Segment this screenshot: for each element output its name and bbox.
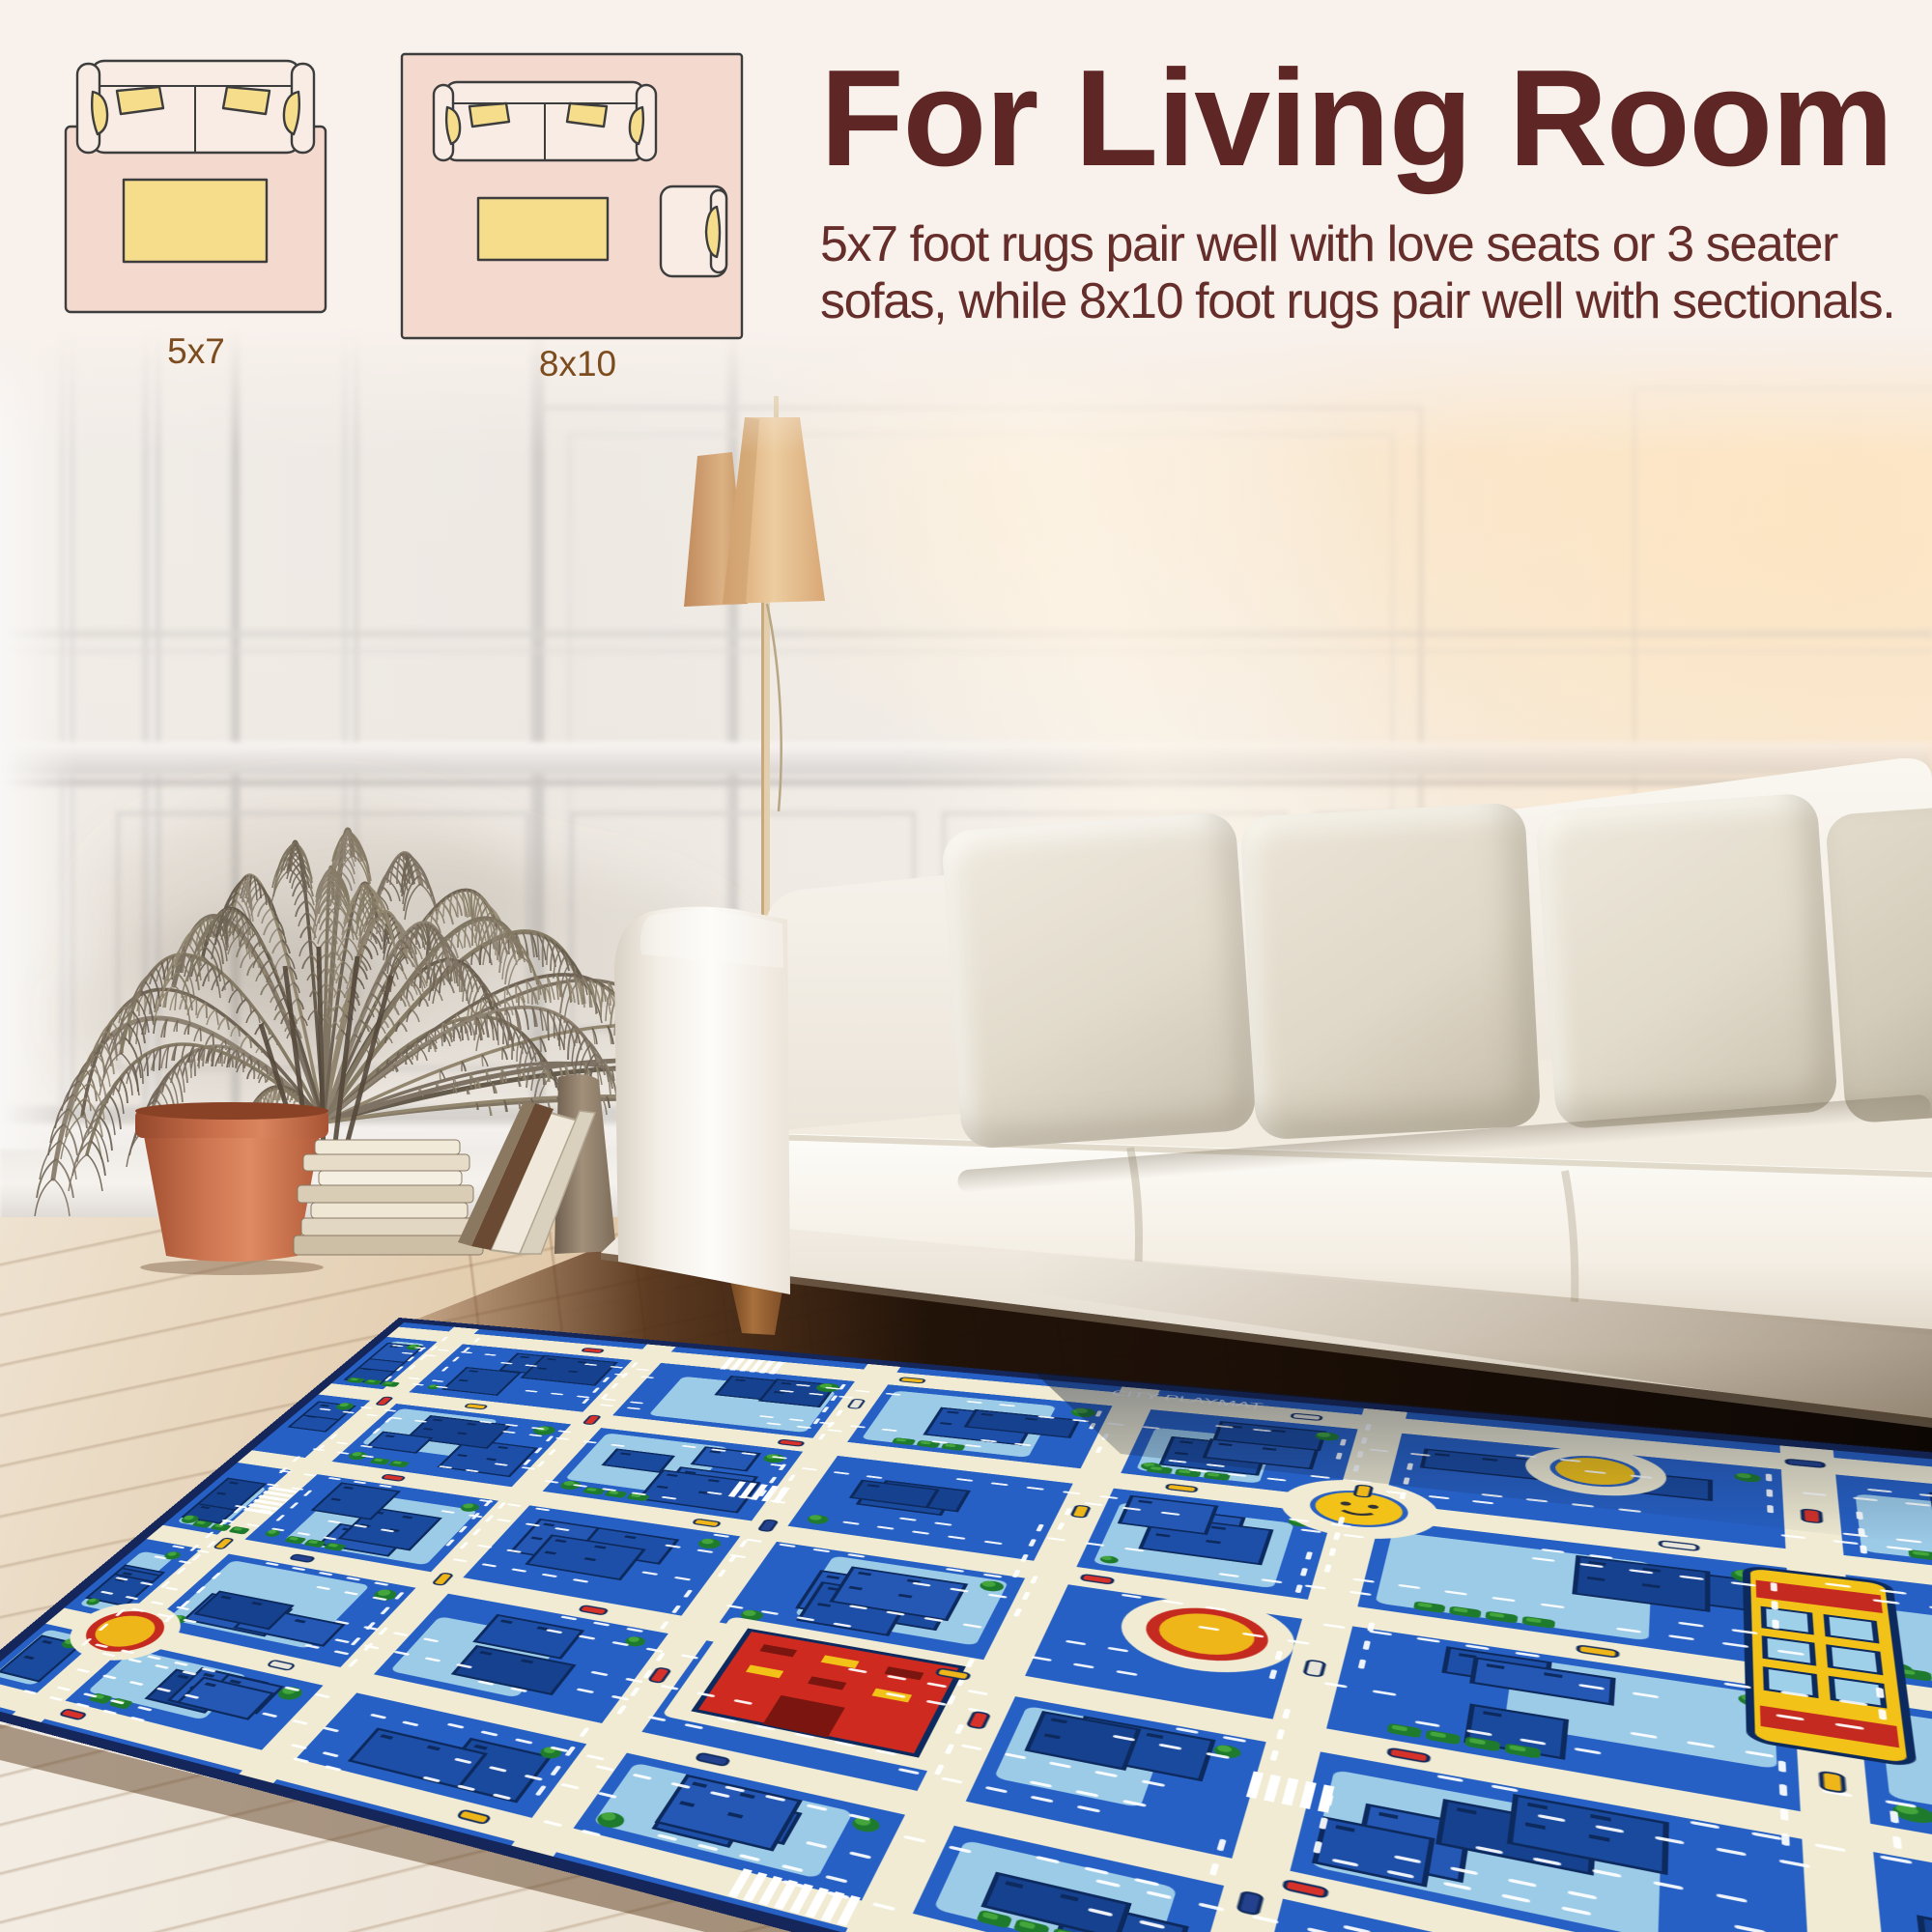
svg-text:5x7: 5x7	[167, 331, 225, 371]
svg-text:8x10: 8x10	[539, 344, 616, 384]
